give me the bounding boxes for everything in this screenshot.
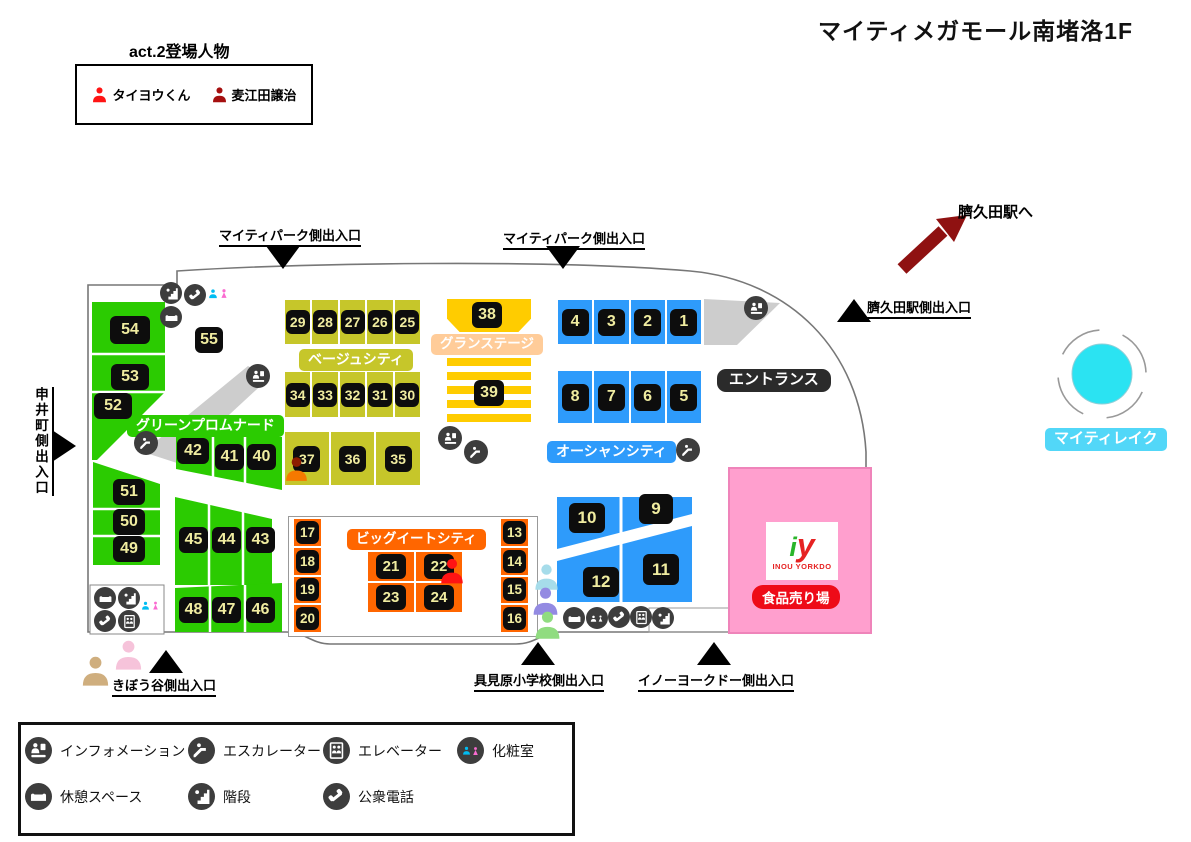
person-marker-green bbox=[532, 608, 563, 641]
store-tile-54: 54 bbox=[110, 316, 150, 344]
big-eat-city-label: ビッグイートシティ bbox=[347, 529, 486, 550]
store-tile-6: 6 bbox=[634, 384, 661, 411]
rest-space-icon bbox=[94, 587, 116, 609]
store-tile-18: 18 bbox=[296, 550, 319, 573]
store-tile-16: 16 bbox=[503, 607, 526, 630]
legend-item-restroom: 化粧室 bbox=[457, 737, 534, 764]
legend-item-stairs: 階段 bbox=[188, 783, 251, 810]
store-tile-49: 49 bbox=[113, 536, 145, 562]
beige-city-label: ベージュシティ bbox=[299, 349, 413, 371]
phone-icon bbox=[94, 610, 116, 632]
store-tile-44: 44 bbox=[212, 527, 241, 553]
phone-icon bbox=[323, 783, 350, 810]
rest-space-icon bbox=[25, 783, 52, 810]
cast-member-name: 麦江田譲治 bbox=[232, 85, 297, 104]
cast-member: タイヨウくん bbox=[91, 85, 190, 104]
cast-panel: タイヨウくん 麦江田譲治 bbox=[75, 64, 313, 125]
store-tile-10: 10 bbox=[569, 503, 605, 533]
store-tile-20: 20 bbox=[296, 607, 319, 630]
cast-member-name: タイヨウくん bbox=[112, 85, 190, 104]
station-direction-label: 臍久田駅へ bbox=[958, 201, 1033, 222]
phone-icon bbox=[184, 284, 206, 306]
store-tile-19: 19 bbox=[296, 578, 319, 601]
food-hall-label: 食品売り場 bbox=[752, 585, 840, 609]
information-icon bbox=[438, 426, 462, 450]
store-tile-25: 25 bbox=[395, 310, 419, 334]
person-icon bbox=[211, 86, 228, 103]
exit-triangle bbox=[266, 246, 300, 269]
store-tile-38: 38 bbox=[472, 302, 502, 328]
beige-city-row-2: 34 33 32 31 30 bbox=[285, 372, 420, 417]
store-tile-52: 52 bbox=[94, 393, 132, 419]
store-tile-9: 9 bbox=[639, 494, 673, 524]
store-tile-33: 33 bbox=[313, 383, 337, 407]
store-tile-30: 30 bbox=[395, 383, 419, 407]
phone-icon bbox=[608, 606, 630, 628]
exit-label-hesokuda-station: 臍久田駅側出入口 bbox=[867, 297, 971, 319]
person-icon bbox=[91, 86, 108, 103]
ocean-city-label: オーシャンシティ bbox=[547, 441, 676, 463]
store-tile-8: 8 bbox=[562, 384, 589, 411]
lake-label: マイティレイク bbox=[1045, 428, 1167, 451]
person-marker-orange bbox=[283, 452, 310, 485]
store-tile-13: 13 bbox=[503, 521, 526, 544]
logo-mark-i: i bbox=[789, 532, 797, 562]
store-tile-36: 36 bbox=[339, 446, 366, 472]
restroom-icon bbox=[141, 596, 160, 615]
person-marker-pink bbox=[112, 636, 145, 673]
store-tile-26: 26 bbox=[368, 310, 392, 334]
store-tile-17: 17 bbox=[296, 521, 319, 544]
information-icon bbox=[25, 737, 52, 764]
stairs-icon bbox=[160, 282, 182, 304]
exit-triangle bbox=[521, 642, 555, 665]
store-tile-3: 3 bbox=[598, 309, 625, 336]
store-tile-21: 21 bbox=[376, 554, 406, 579]
elevator-icon bbox=[118, 610, 140, 632]
ocean-city-row-2: 8 7 6 5 bbox=[558, 371, 701, 423]
store-tile-24: 24 bbox=[424, 585, 454, 610]
big-eat-left-column: 17 18 19 20 bbox=[294, 519, 321, 632]
person-marker-tan bbox=[79, 652, 112, 689]
rest-space-icon bbox=[160, 306, 182, 328]
cast-member: 麦江田譲治 bbox=[211, 85, 297, 104]
stairs-icon bbox=[652, 607, 674, 629]
store-tile-28: 28 bbox=[313, 310, 337, 334]
legend-item-escalator: エスカレーター bbox=[188, 737, 321, 764]
exit-label-inou-yorkdo: イノーヨークドー側出入口 bbox=[638, 670, 794, 692]
store-tile-23: 23 bbox=[376, 585, 406, 610]
food-hall-area: iy INOU YORKDO 食品売り場 bbox=[728, 467, 872, 634]
store-name: INOU YORKDO bbox=[772, 562, 831, 571]
escalator-icon bbox=[134, 431, 158, 455]
entrance-walkway bbox=[704, 299, 780, 345]
elevator-icon bbox=[630, 606, 652, 628]
exit-triangle bbox=[149, 650, 183, 673]
store-tile-31: 31 bbox=[368, 383, 392, 407]
store-tile-39: 39 bbox=[474, 380, 504, 406]
entrance-label: エントランス bbox=[717, 369, 831, 392]
restroom-icon bbox=[586, 607, 608, 629]
store-tile-34: 34 bbox=[286, 383, 310, 407]
exit-triangle bbox=[697, 642, 731, 665]
exit-label-kibou-valley: きぼう谷側出入口 bbox=[112, 675, 216, 697]
information-icon bbox=[744, 296, 768, 320]
store-tile-5: 5 bbox=[670, 384, 697, 411]
logo-mark-y: y bbox=[797, 527, 815, 563]
rest-space-icon bbox=[563, 607, 585, 629]
store-tile-15: 15 bbox=[503, 578, 526, 601]
person-marker-taiyou bbox=[438, 554, 466, 587]
exit-triangle bbox=[837, 299, 871, 322]
exit-triangle bbox=[52, 430, 76, 462]
store-tile-4: 4 bbox=[562, 309, 589, 336]
store-tile-48: 48 bbox=[179, 597, 208, 623]
store-tile-43: 43 bbox=[246, 527, 275, 553]
page-title: マイティメガモール南堵洛1F bbox=[818, 12, 1133, 46]
store-tile-29: 29 bbox=[286, 310, 310, 334]
lake-water bbox=[1072, 344, 1132, 404]
store-tile-7: 7 bbox=[598, 384, 625, 411]
station-arrow bbox=[902, 215, 967, 269]
store-tile-35: 35 bbox=[385, 446, 412, 472]
store-tile-12: 12 bbox=[583, 567, 619, 597]
restroom-icon bbox=[208, 283, 229, 304]
legend-item-information: インフォメーション bbox=[25, 737, 185, 764]
escalator-icon bbox=[676, 438, 700, 462]
restroom-icon bbox=[457, 737, 484, 764]
stairs-icon bbox=[118, 587, 140, 609]
store-tile-51: 51 bbox=[113, 479, 145, 505]
escalator-icon bbox=[188, 737, 215, 764]
exit-label-saruimachi: 申井町側出入口 bbox=[30, 387, 54, 496]
store-tile-45: 45 bbox=[179, 527, 208, 553]
cast-panel-title: act.2登場人物 bbox=[129, 38, 229, 62]
store-tile-27: 27 bbox=[341, 310, 365, 334]
legend-item-elevator: エレベーター bbox=[323, 737, 442, 764]
ocean-city-row-1: 4 3 2 1 bbox=[558, 300, 701, 344]
exit-label-gumihara-school: 具見原小学校側出入口 bbox=[474, 670, 604, 692]
stairs-icon bbox=[188, 783, 215, 810]
store-tile-1: 1 bbox=[670, 309, 697, 336]
legend-item-rest-space: 休憩スペース bbox=[25, 783, 142, 810]
store-tile-47: 47 bbox=[212, 597, 241, 623]
store-tile-32: 32 bbox=[341, 383, 365, 407]
exit-triangle bbox=[546, 246, 580, 269]
store-tile-46: 46 bbox=[246, 597, 275, 623]
grand-stage-label: グランステージ bbox=[431, 334, 543, 355]
store-tile-53: 53 bbox=[111, 364, 149, 390]
store-tile-14: 14 bbox=[503, 550, 526, 573]
store-tile-40: 40 bbox=[247, 444, 276, 470]
mall-floor-map: マイティメガモール南堵洛1F act.2登場人物 タイヨウくん 麦江田譲治 マイ… bbox=[0, 0, 1191, 842]
store-tile-50: 50 bbox=[113, 509, 145, 535]
beige-city-row-1: 29 28 27 26 25 bbox=[285, 300, 420, 344]
elevator-icon bbox=[323, 737, 350, 764]
store-tile-41: 41 bbox=[215, 444, 244, 470]
store-tile-42: 42 bbox=[177, 438, 209, 464]
store-tile-2: 2 bbox=[634, 309, 661, 336]
legend-item-phone: 公衆電話 bbox=[323, 783, 414, 810]
store-tile-55: 55 bbox=[195, 327, 223, 353]
information-icon bbox=[246, 364, 270, 388]
big-eat-right-column: 13 14 15 16 bbox=[501, 519, 528, 632]
inou-yorkdo-logo: iy INOU YORKDO bbox=[766, 522, 838, 580]
store-tile-11: 11 bbox=[643, 554, 679, 585]
escalator-icon bbox=[464, 440, 488, 464]
exit-label-mighty-park-1: マイティパーク側出入口 bbox=[219, 225, 361, 247]
